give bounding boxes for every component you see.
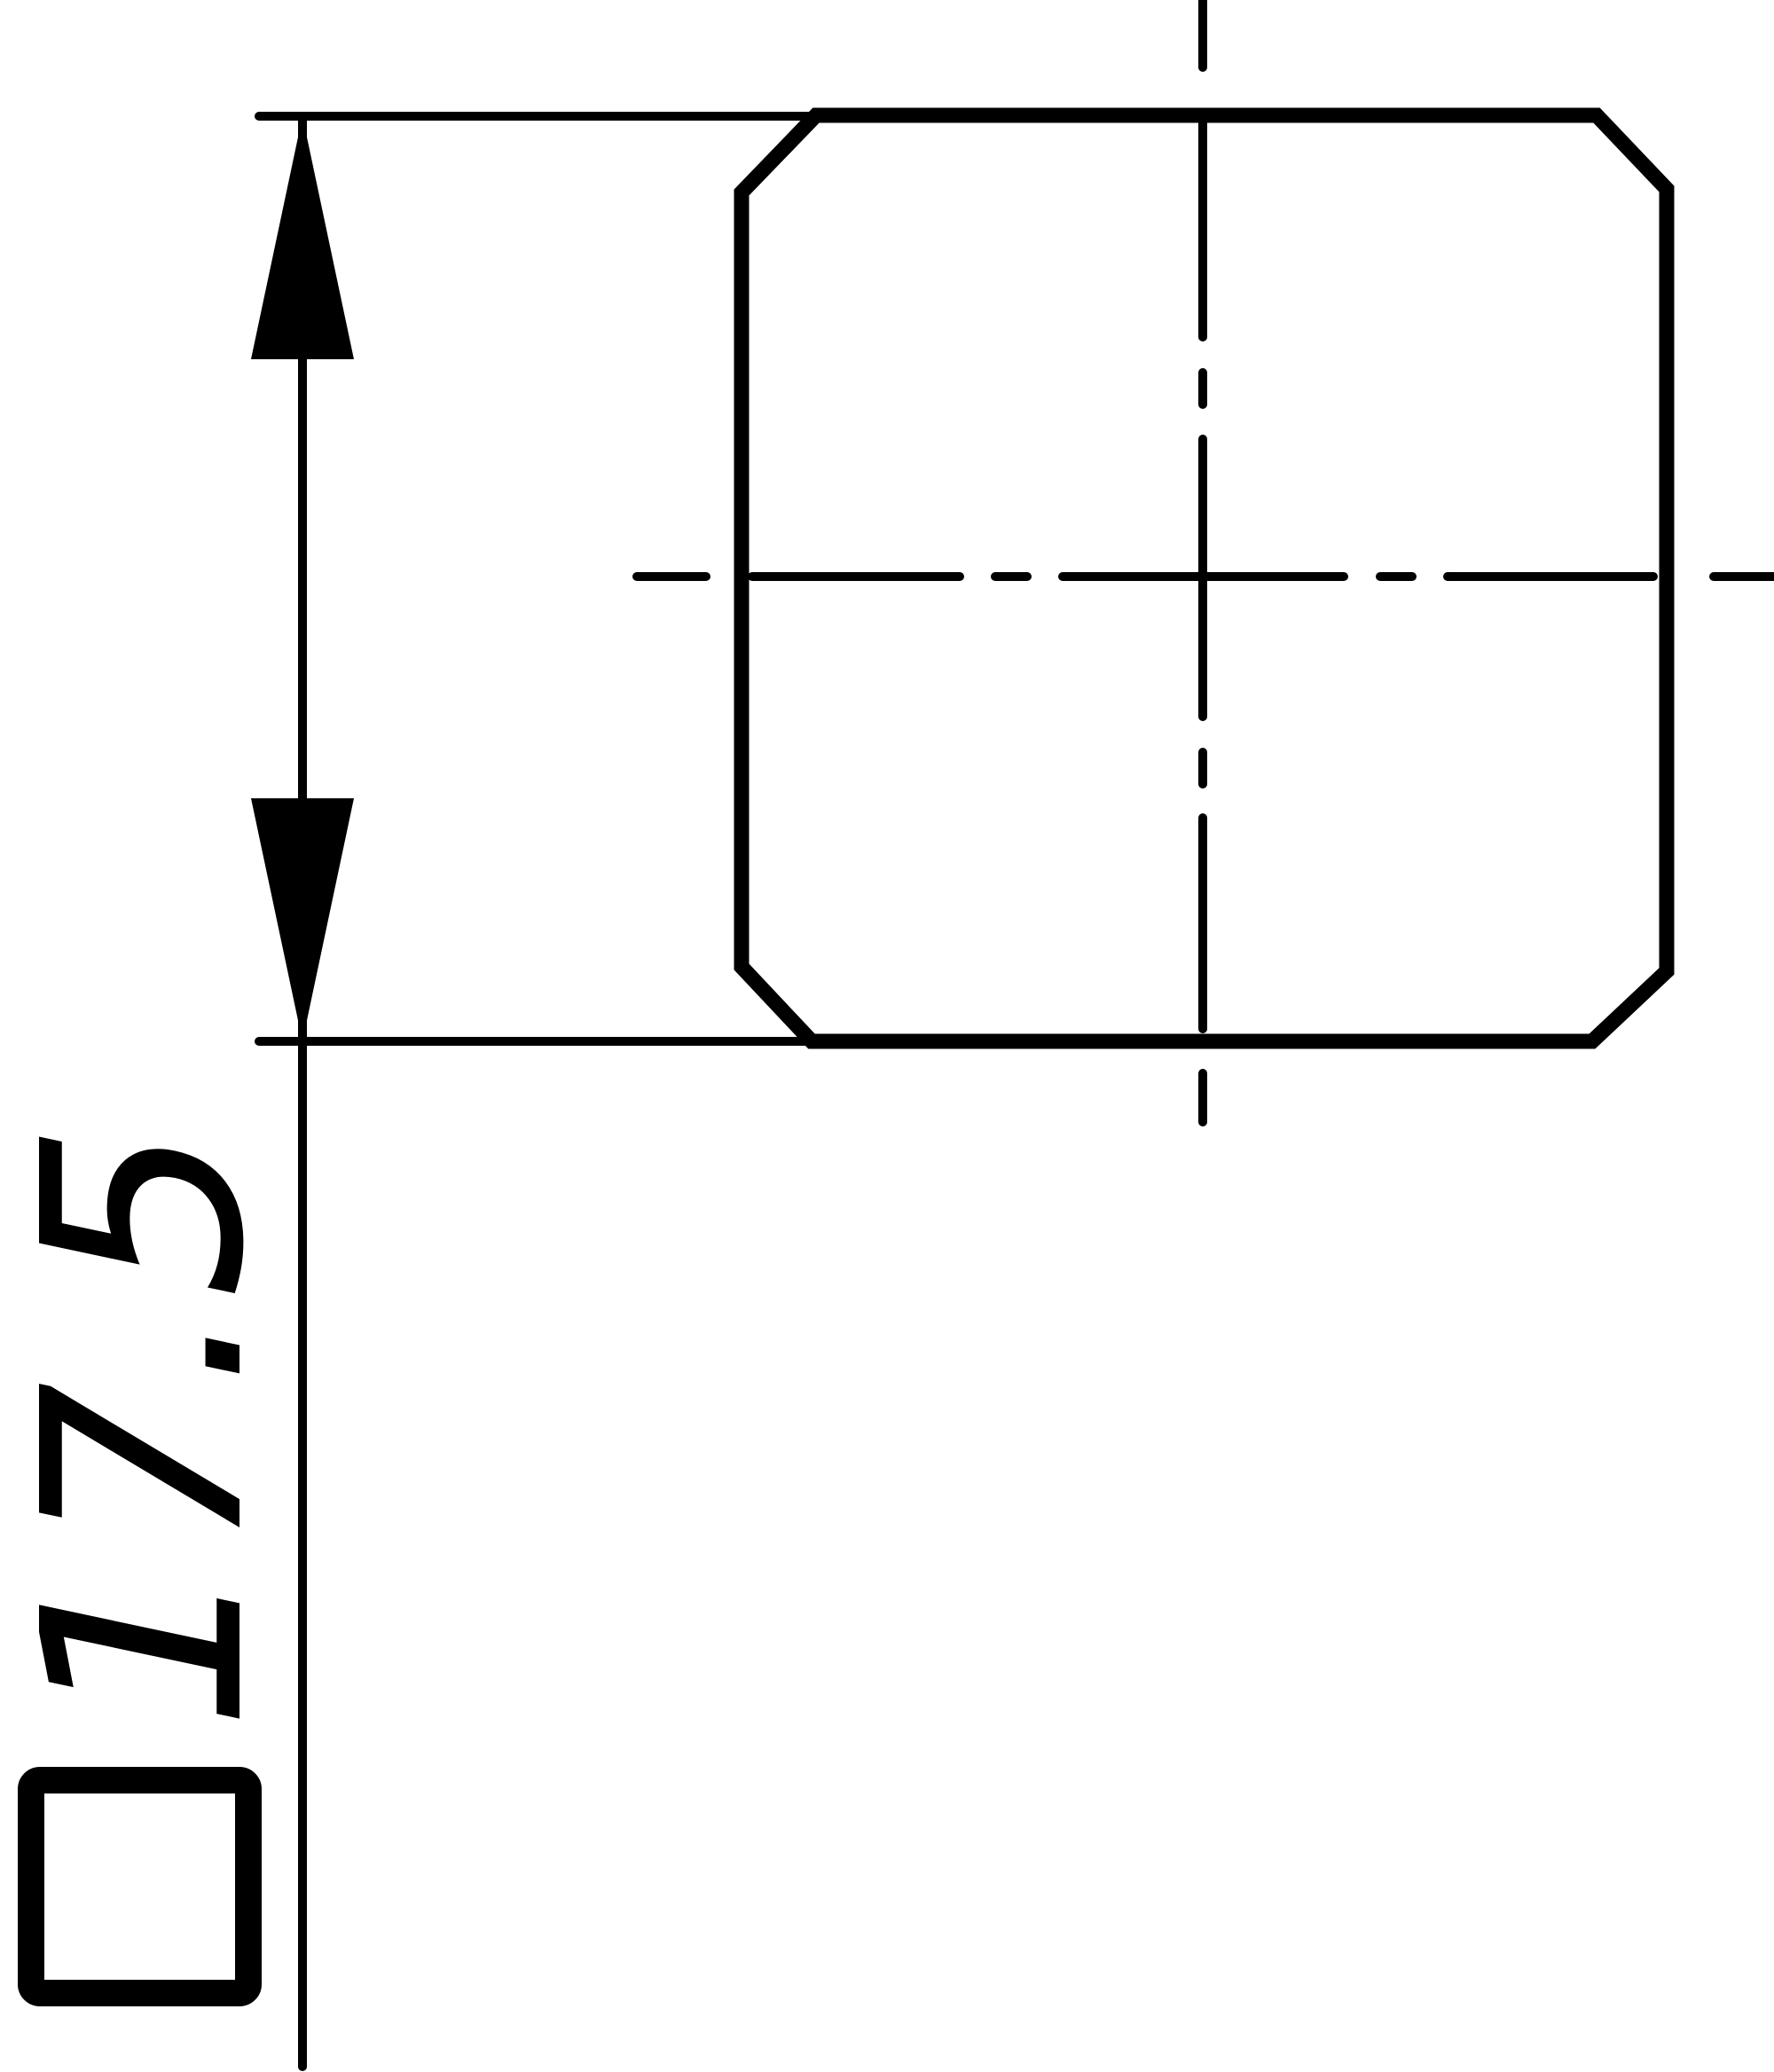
drawing-sheet: 17.5 xyxy=(0,0,1774,2072)
dimension-arrowhead-up-icon xyxy=(251,116,354,359)
dimension-value-text: 17.5 xyxy=(0,1087,304,1767)
dimension-arrowhead-down-icon xyxy=(251,798,354,1041)
square-section-symbol-icon xyxy=(31,1780,248,1993)
technical-drawing-canvas: 17.5 xyxy=(0,0,1774,2072)
